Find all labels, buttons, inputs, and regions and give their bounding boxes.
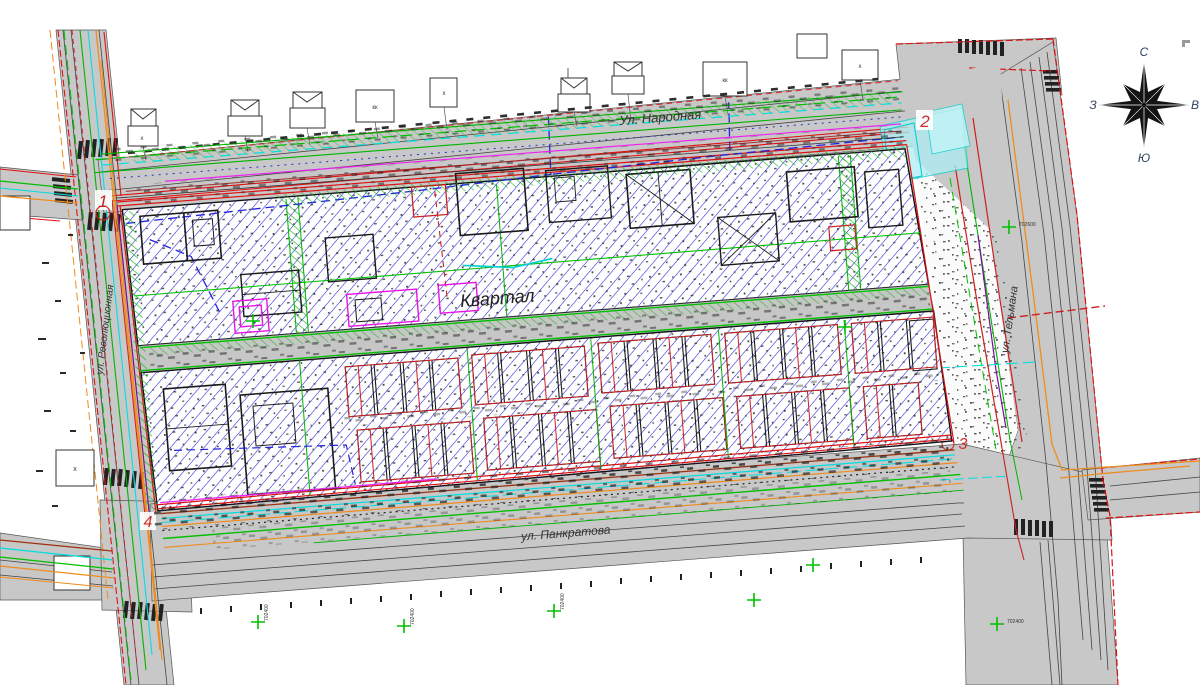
svg-text:кк: кк <box>372 105 378 111</box>
svg-text:х: х <box>859 64 862 70</box>
svg-text:702400: 702400 <box>1007 619 1024 625</box>
svg-text:4: 4 <box>144 514 153 531</box>
svg-text:х: х <box>141 136 144 142</box>
svg-text:702400: 702400 <box>264 604 270 621</box>
svg-text:х: х <box>73 466 77 473</box>
svg-text:х: х <box>443 91 446 97</box>
svg-text:Ю: Ю <box>1138 151 1150 165</box>
svg-text:1: 1 <box>98 192 107 211</box>
svg-text:кк: кк <box>722 78 728 84</box>
svg-text:702600: 702600 <box>1019 222 1036 228</box>
svg-text:З: З <box>1089 98 1097 112</box>
svg-text:В: В <box>1191 98 1199 112</box>
svg-text:2: 2 <box>919 112 930 131</box>
svg-text:С: С <box>1140 45 1149 59</box>
svg-text:3: 3 <box>959 436 968 453</box>
svg-text:702400: 702400 <box>560 593 566 610</box>
svg-text:702400: 702400 <box>410 608 416 625</box>
